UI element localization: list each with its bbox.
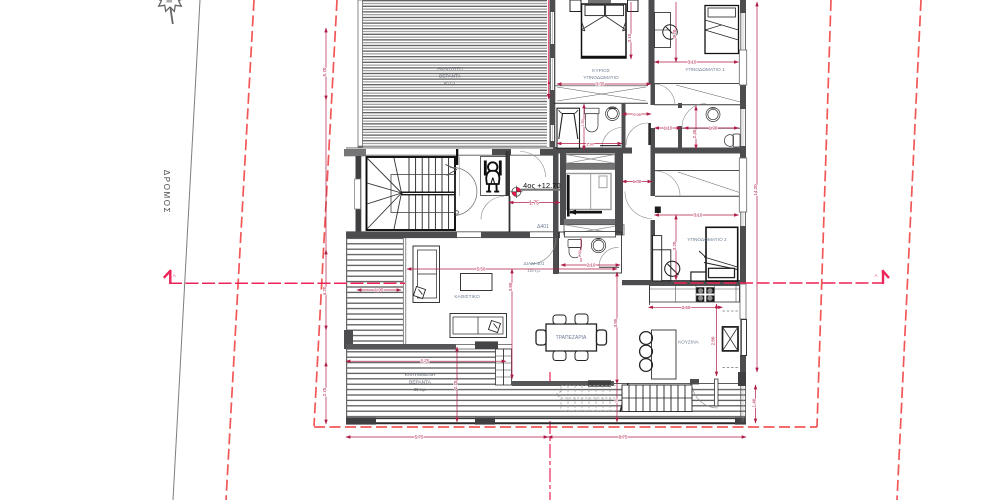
svg-text:ΚΟΥΖΙΝΑ: ΚΟΥΖΙΝΑ [678, 340, 700, 346]
svg-text:1.75: 1.75 [529, 200, 539, 206]
svg-text:3.80: 3.80 [508, 282, 513, 291]
svg-text:1.50: 1.50 [578, 250, 582, 257]
svg-text:ΚΑΘΙΣΤΙΚΟ: ΚΑΘΙΣΤΙΚΟ [454, 294, 480, 300]
svg-text:ΚΑΛΥΜΜΕΝΗ: ΚΑΛΥΜΜΕΝΗ [405, 372, 436, 378]
svg-text:1.90: 1.90 [709, 126, 718, 131]
svg-text:ΥΠΝΟΔΩΜΑΤΙΟ 1: ΥΠΝΟΔΩΜΑΤΙΟ 1 [685, 67, 725, 73]
svg-text:1.40: 1.40 [752, 398, 757, 407]
svg-text:ΥΠΝΟΔΩΜΑΤΙΟ 2: ΥΠΝΟΔΩΜΑΤΙΟ 2 [687, 237, 727, 243]
svg-text:3.85: 3.85 [613, 318, 618, 327]
svg-text:0.95: 0.95 [633, 112, 642, 117]
svg-text:16: 16 [615, 399, 619, 403]
svg-text:2.60: 2.60 [682, 305, 691, 310]
svg-text:8.75: 8.75 [619, 435, 628, 440]
svg-text:5.75: 5.75 [421, 359, 430, 364]
svg-text:1.30: 1.30 [586, 141, 595, 146]
svg-text:3.20: 3.20 [672, 241, 677, 250]
svg-text:3.35: 3.35 [596, 82, 605, 87]
svg-text:Δ401: Δ401 [537, 224, 549, 230]
svg-text:3.10: 3.10 [694, 213, 703, 218]
svg-text:ΒΕΡΑΝΤΑ: ΒΕΡΑΝΤΑ [439, 74, 461, 80]
svg-text:ΚΥΡΙΟΣ: ΚΥΡΙΟΣ [592, 68, 610, 74]
svg-text:2.75: 2.75 [322, 387, 327, 396]
svg-text:4.20: 4.20 [322, 286, 327, 295]
svg-text:5.70: 5.70 [322, 67, 327, 76]
svg-text:2.70: 2.70 [453, 380, 458, 389]
svg-text:3.20: 3.20 [672, 29, 677, 38]
svg-text:ΔΡΟΜΟΣ: ΔΡΟΜΟΣ [162, 170, 171, 214]
svg-text:2.40: 2.40 [692, 129, 697, 138]
svg-text:5.50: 5.50 [477, 267, 486, 272]
svg-text:1.95: 1.95 [375, 287, 384, 292]
svg-text:1.50: 1.50 [581, 119, 585, 126]
svg-text:ΥΠΝΟΔΩΜΑΤΙΟ: ΥΠΝΟΔΩΜΑΤΙΟ [583, 75, 619, 81]
svg-text:ΑΚΑΛΥΠΤΗ: ΑΚΑΛΥΠΤΗ [437, 66, 463, 72]
svg-text:60 τ.μ.: 60 τ.μ. [444, 81, 456, 86]
svg-text:ΤΡΑΠΕΖΑΡΙΑ: ΤΡΑΠΕΖΑΡΙΑ [556, 335, 587, 341]
svg-text:14.20: 14.20 [753, 184, 758, 196]
svg-text:3.15: 3.15 [627, 33, 632, 42]
svg-text:ΒΕΡΑΝΤΑ: ΒΕΡΑΝΤΑ [409, 380, 431, 386]
svg-text:1.00: 1.00 [633, 179, 642, 184]
svg-text:4ος +12.70: 4ος +12.70 [523, 181, 561, 190]
svg-text:1.10: 1.10 [664, 126, 673, 131]
svg-text:3.10: 3.10 [688, 60, 697, 65]
svg-text:35 τ.μ.: 35 τ.μ. [414, 387, 426, 392]
svg-text:ΔΙΑΜ 401: ΔΙΑΜ 401 [523, 261, 544, 267]
svg-text:5.75: 5.75 [415, 435, 424, 440]
svg-text:2.10: 2.10 [587, 263, 596, 268]
svg-text:2.80: 2.80 [711, 336, 716, 345]
